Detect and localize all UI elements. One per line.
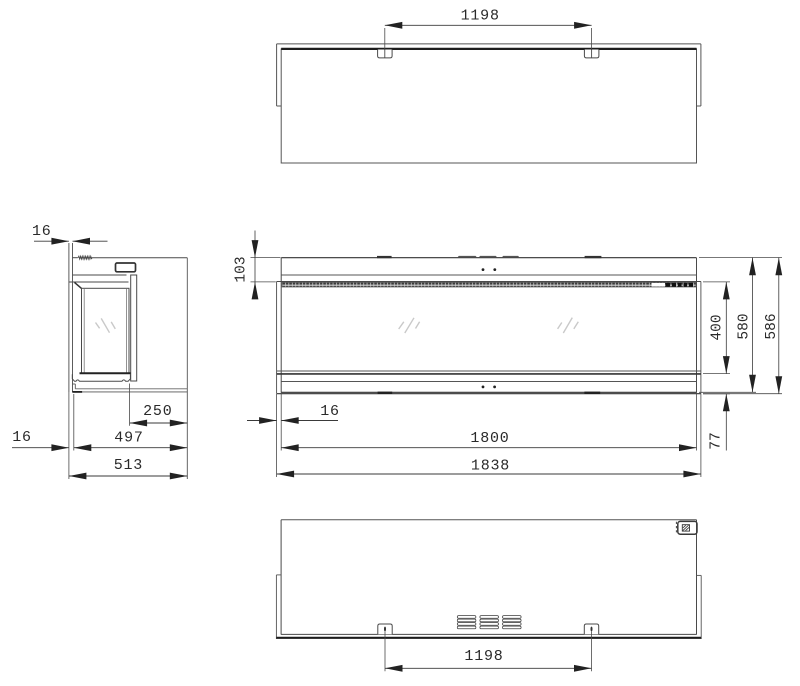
svg-text:580: 580 [737,313,753,339]
svg-text:1838: 1838 [471,458,510,475]
svg-text:16: 16 [12,429,32,446]
svg-text:1800: 1800 [470,430,509,447]
svg-text:77: 77 [709,432,725,449]
svg-text:1198: 1198 [464,648,503,665]
svg-text:250: 250 [143,403,172,420]
svg-text:1198: 1198 [461,8,500,25]
svg-text:513: 513 [114,457,143,474]
svg-text:16: 16 [32,223,52,240]
svg-text:103: 103 [234,256,250,282]
svg-text:586: 586 [764,313,780,339]
svg-text:497: 497 [114,429,143,446]
svg-text:400: 400 [710,314,726,340]
svg-text:16: 16 [320,403,340,420]
